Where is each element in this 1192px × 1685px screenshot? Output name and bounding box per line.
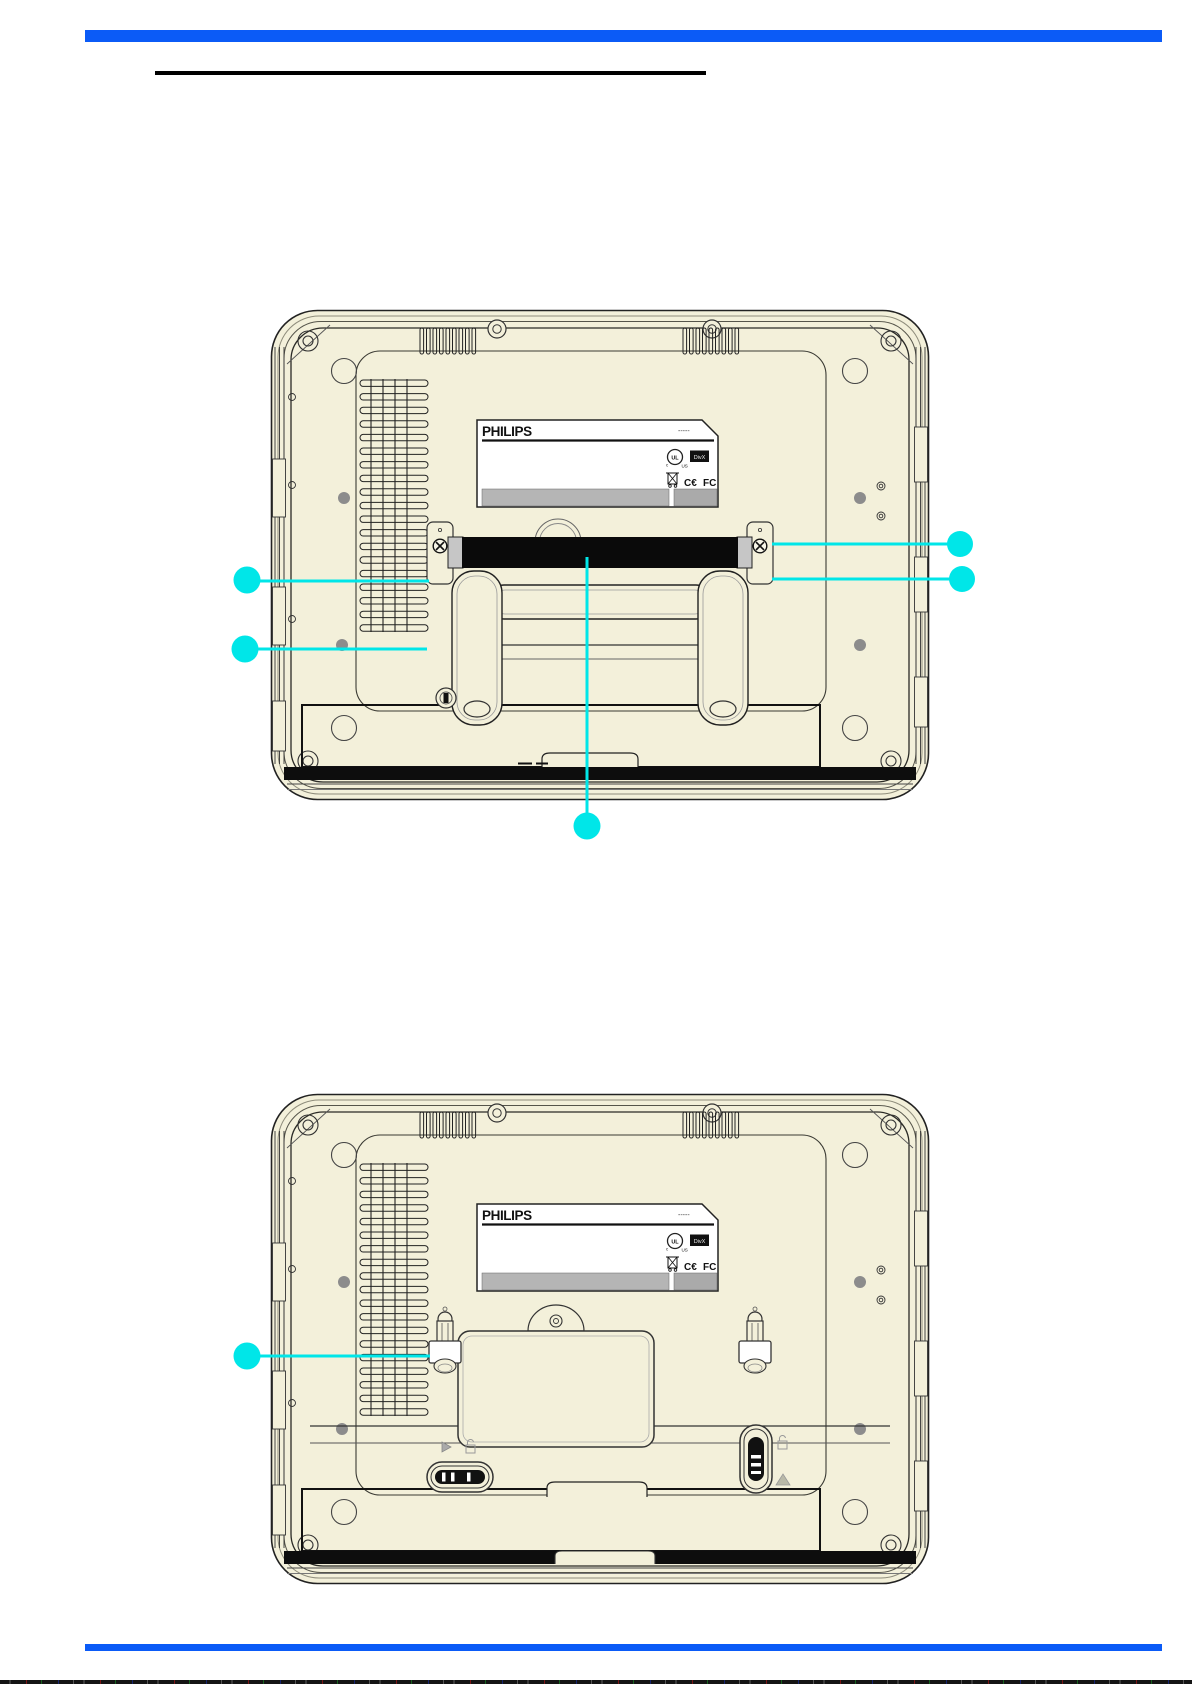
footer-blue-bar [85, 1644, 1162, 1651]
grip-tab-upper [547, 1482, 647, 1497]
release-slider-switch [427, 1462, 493, 1492]
callout-marker-left-lower [232, 636, 259, 663]
lock-knob-icon [436, 688, 456, 708]
diagram-2-rear-with-hooks [234, 1095, 929, 1584]
scan-artifact-strip [0, 1680, 1192, 1684]
rear-view-diagrams: PHILIPS ----- UL c US DivX [0, 0, 1192, 1685]
grip-tab-lower [555, 1551, 655, 1564]
callout-marker-left-hook [234, 1343, 261, 1370]
callout-marker-right-upper [947, 531, 973, 557]
stand-foot-left [464, 701, 490, 717]
callout-marker-left-upper [234, 567, 261, 594]
callout-marker-bottom-center [574, 813, 601, 840]
carrying-strap [448, 537, 752, 568]
stand-foot-right [710, 701, 736, 717]
grip-tab [542, 753, 638, 767]
diagram-1-rear-with-stand [232, 311, 976, 840]
manual-page: PHILIPS ----- UL c US DivX [0, 0, 1192, 1685]
vertical-latch [740, 1425, 772, 1493]
callout-marker-right-lower [949, 566, 975, 592]
